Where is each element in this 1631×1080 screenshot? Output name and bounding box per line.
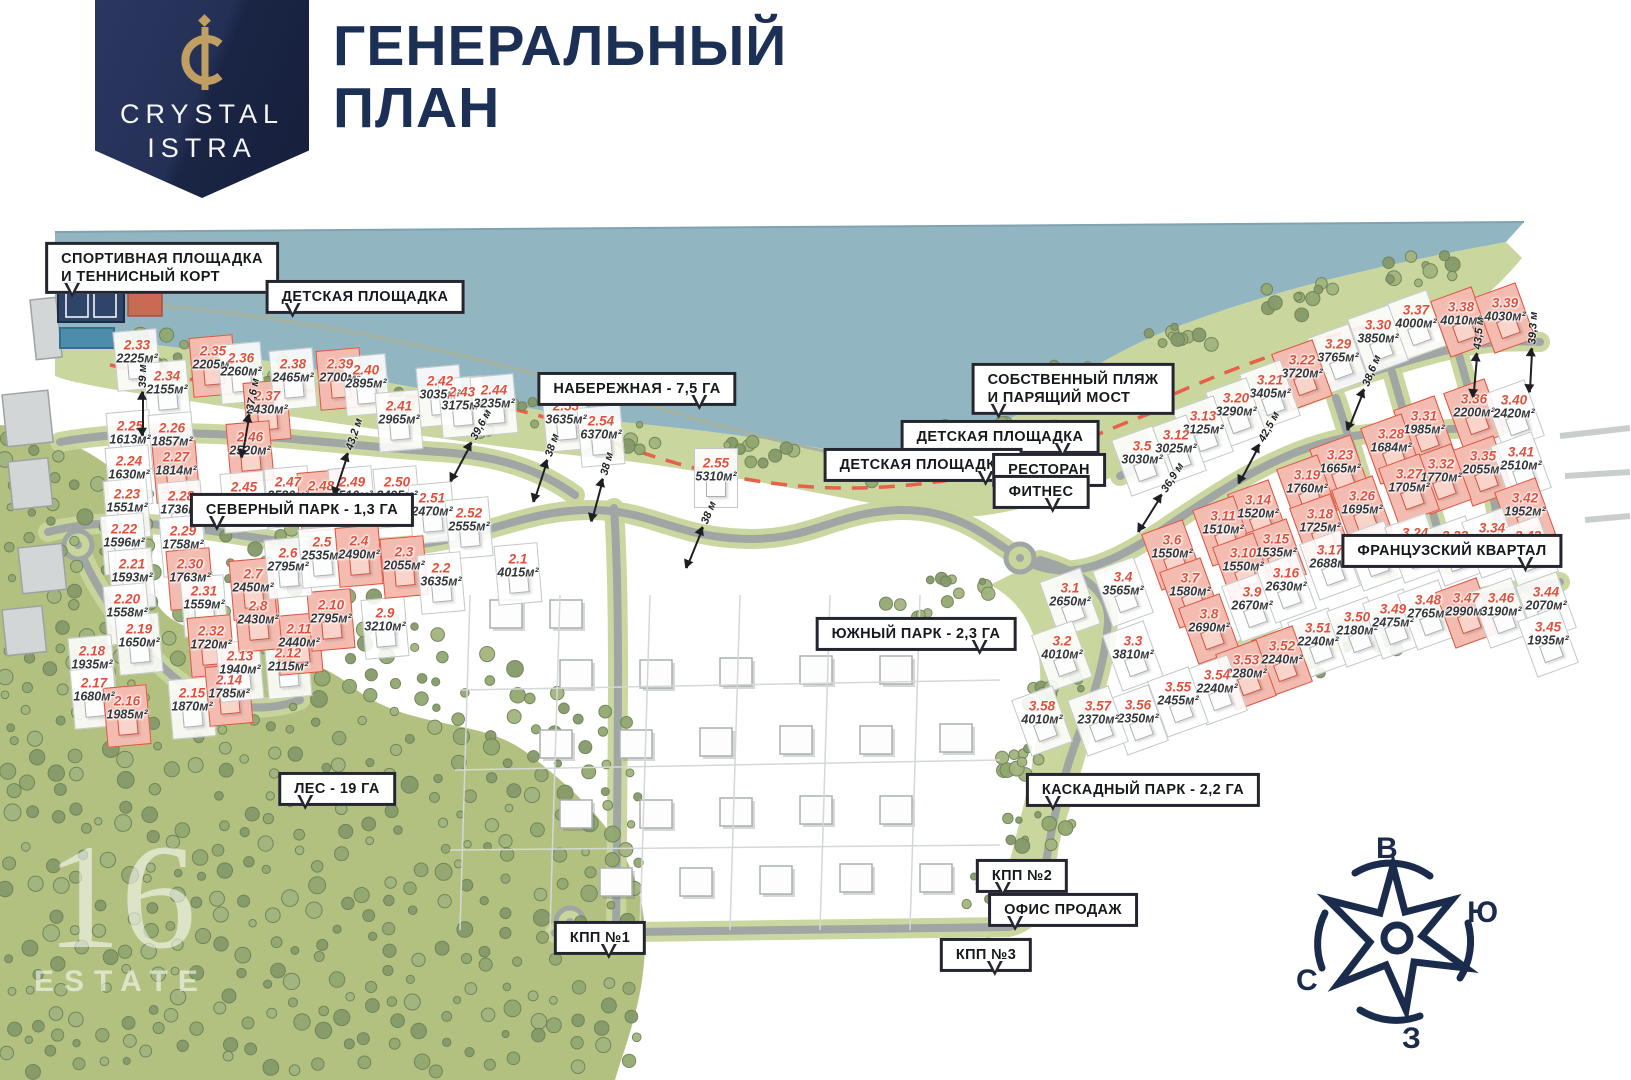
master-plan-page: 2.332225м²2.342155м²2.352205м²2.362260м²… (0, 0, 1631, 1080)
compass-rose: В Ю С З (1300, 838, 1490, 1038)
logo-text-line1: CRYSTAL (120, 98, 284, 132)
compass-label-bottom: З (1402, 1022, 1421, 1056)
logo-monogram-icon (164, 14, 240, 98)
logo-text-line2: ISTRA (147, 132, 257, 166)
page-title-line2: ПЛАН (333, 78, 787, 140)
compass-star-icon (1300, 838, 1490, 1038)
compass-label-left: С (1296, 964, 1318, 998)
compass-label-right: Ю (1467, 896, 1498, 930)
page-title: ГЕНЕРАЛЬНЫЙ ПЛАН (333, 16, 787, 139)
compass-label-top: В (1376, 832, 1398, 866)
page-title-line1: ГЕНЕРАЛЬНЫЙ (333, 16, 787, 78)
